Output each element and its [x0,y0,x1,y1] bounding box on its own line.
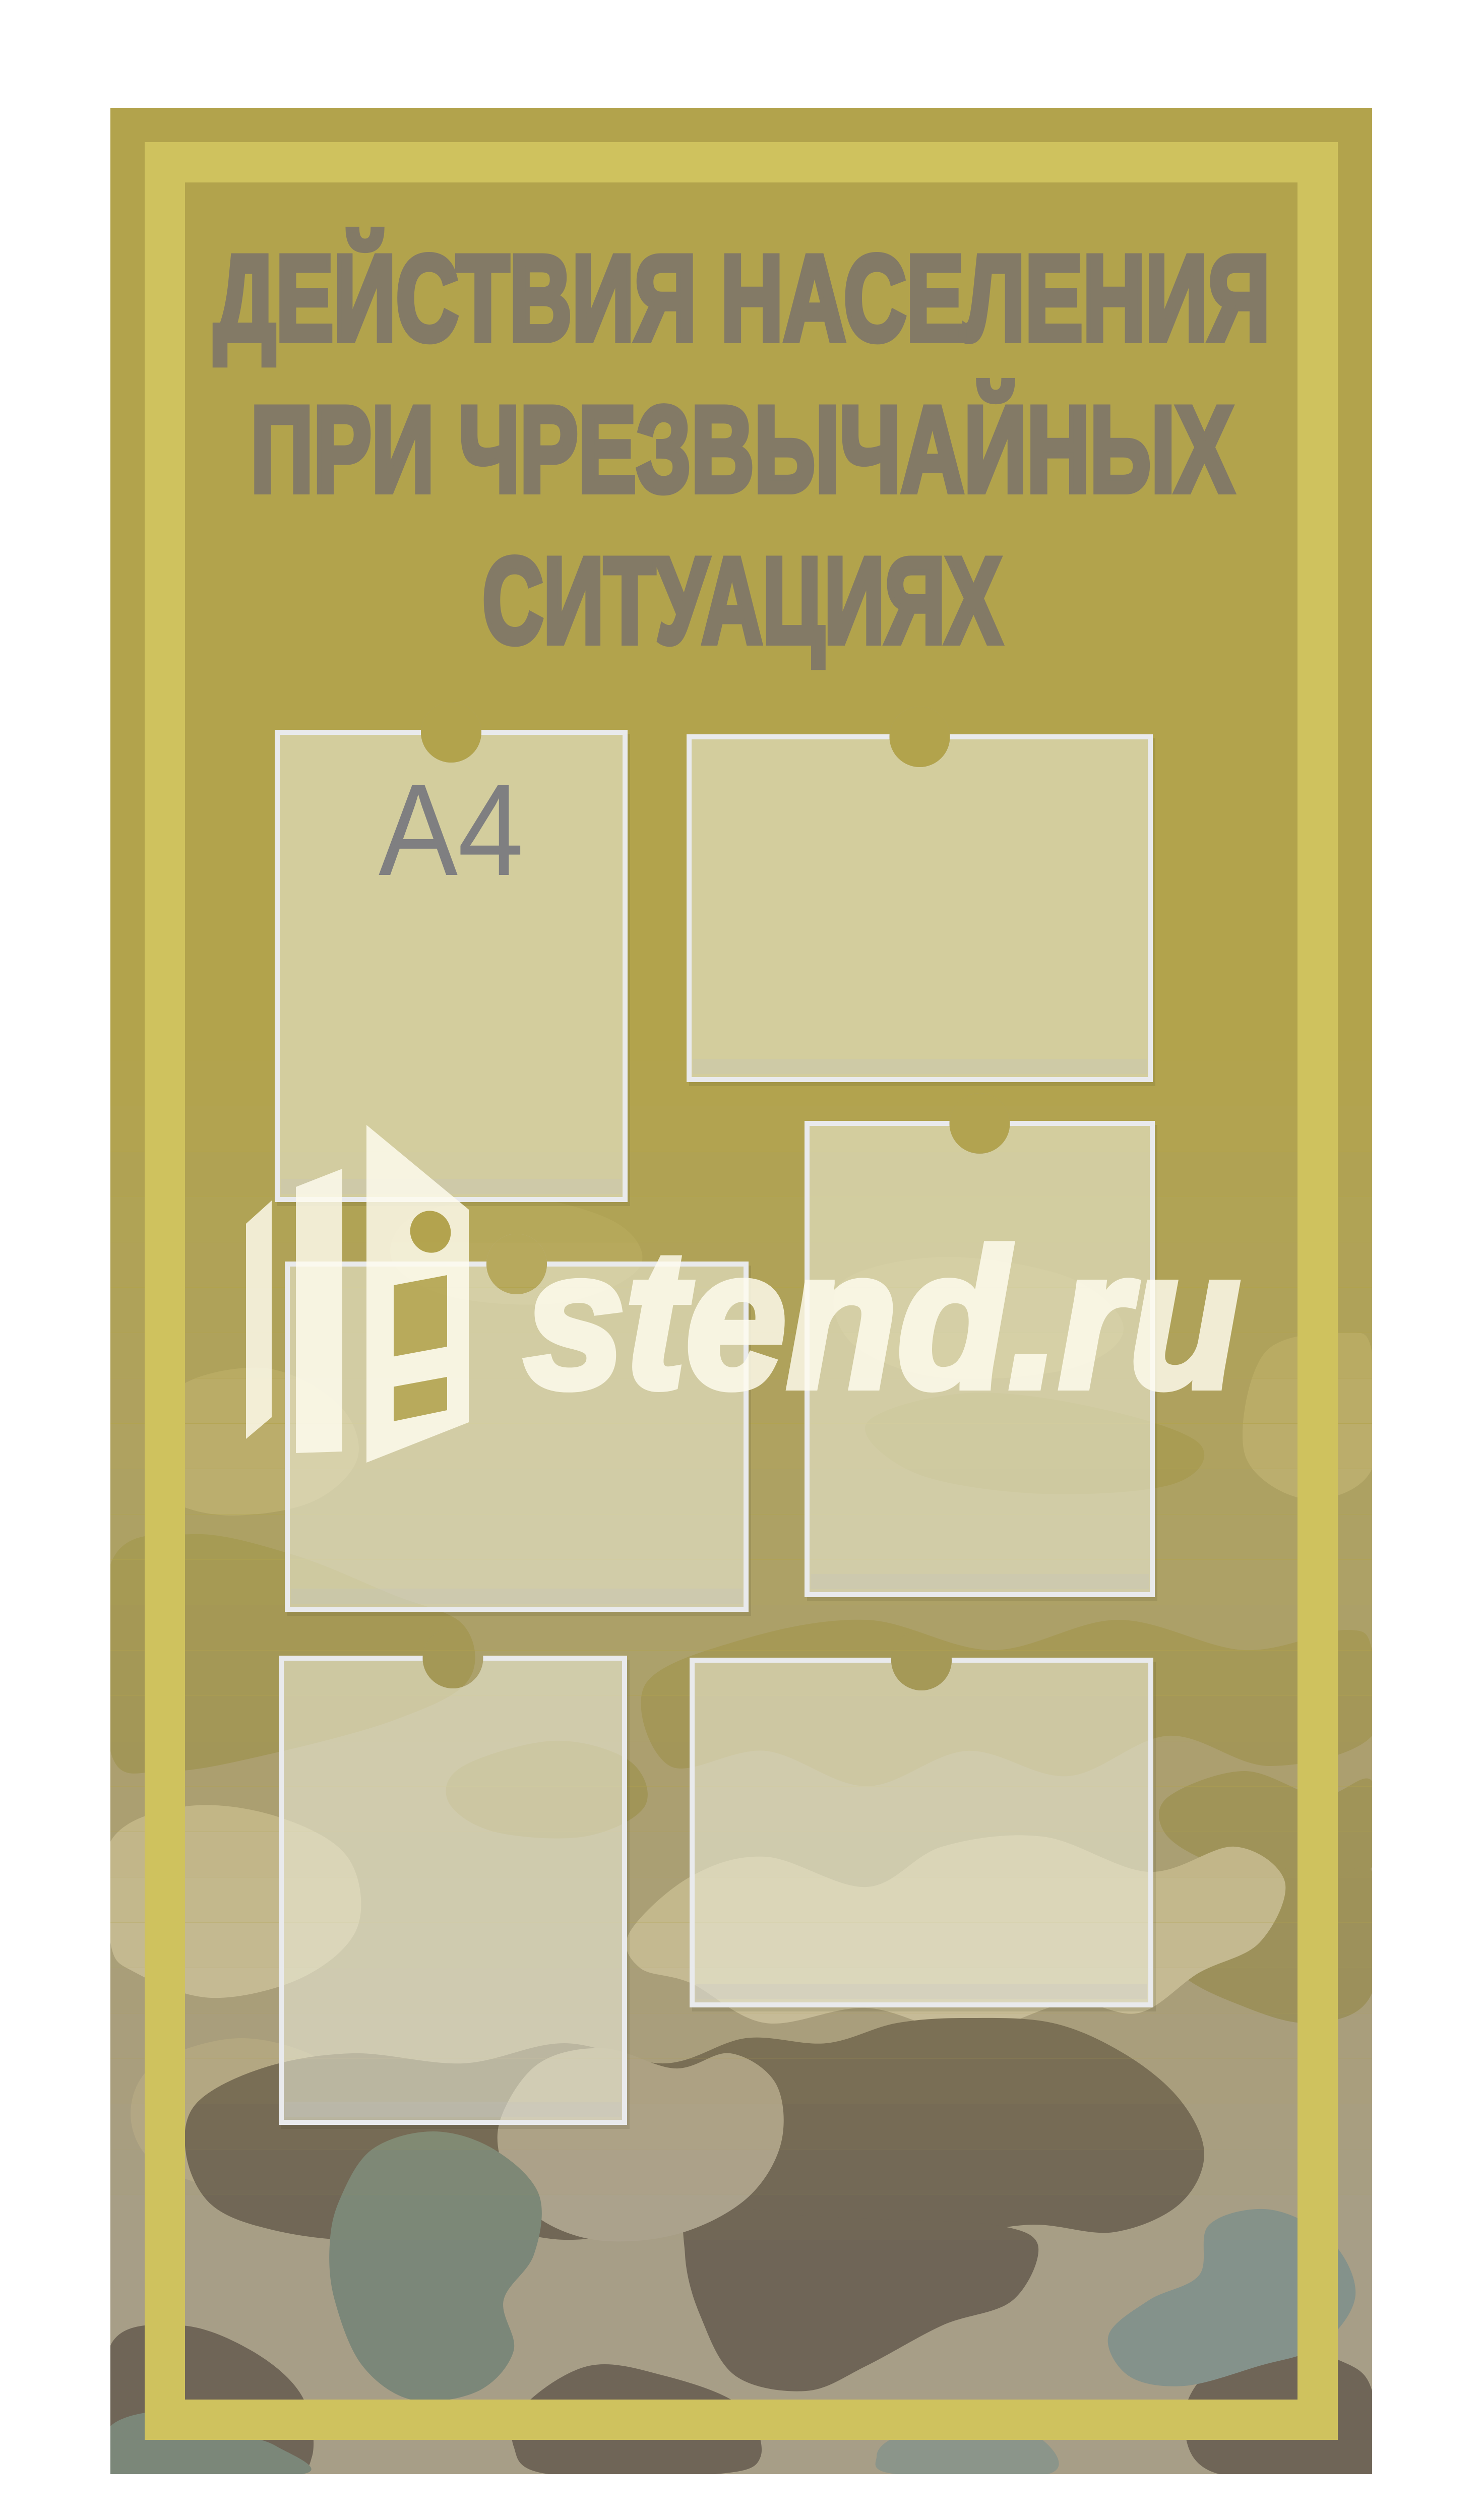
svg-text:ПРИ ЧРЕЗВЫЧАЙНЫХ: ПРИ ЧРЕЗВЫЧАЙНЫХ [251,381,1233,518]
svg-text:stend.ru: stend.ru [524,1209,1240,1429]
svg-text:А4: А4 [379,757,524,903]
svg-text:ДЕЙСТВИЯ НАСЕЛЕНИЯ: ДЕЙСТВИЯ НАСЕЛЕНИЯ [214,230,1270,366]
svg-text:СИТУАЦИЯХ: СИТУАЦИЯХ [482,533,1002,669]
